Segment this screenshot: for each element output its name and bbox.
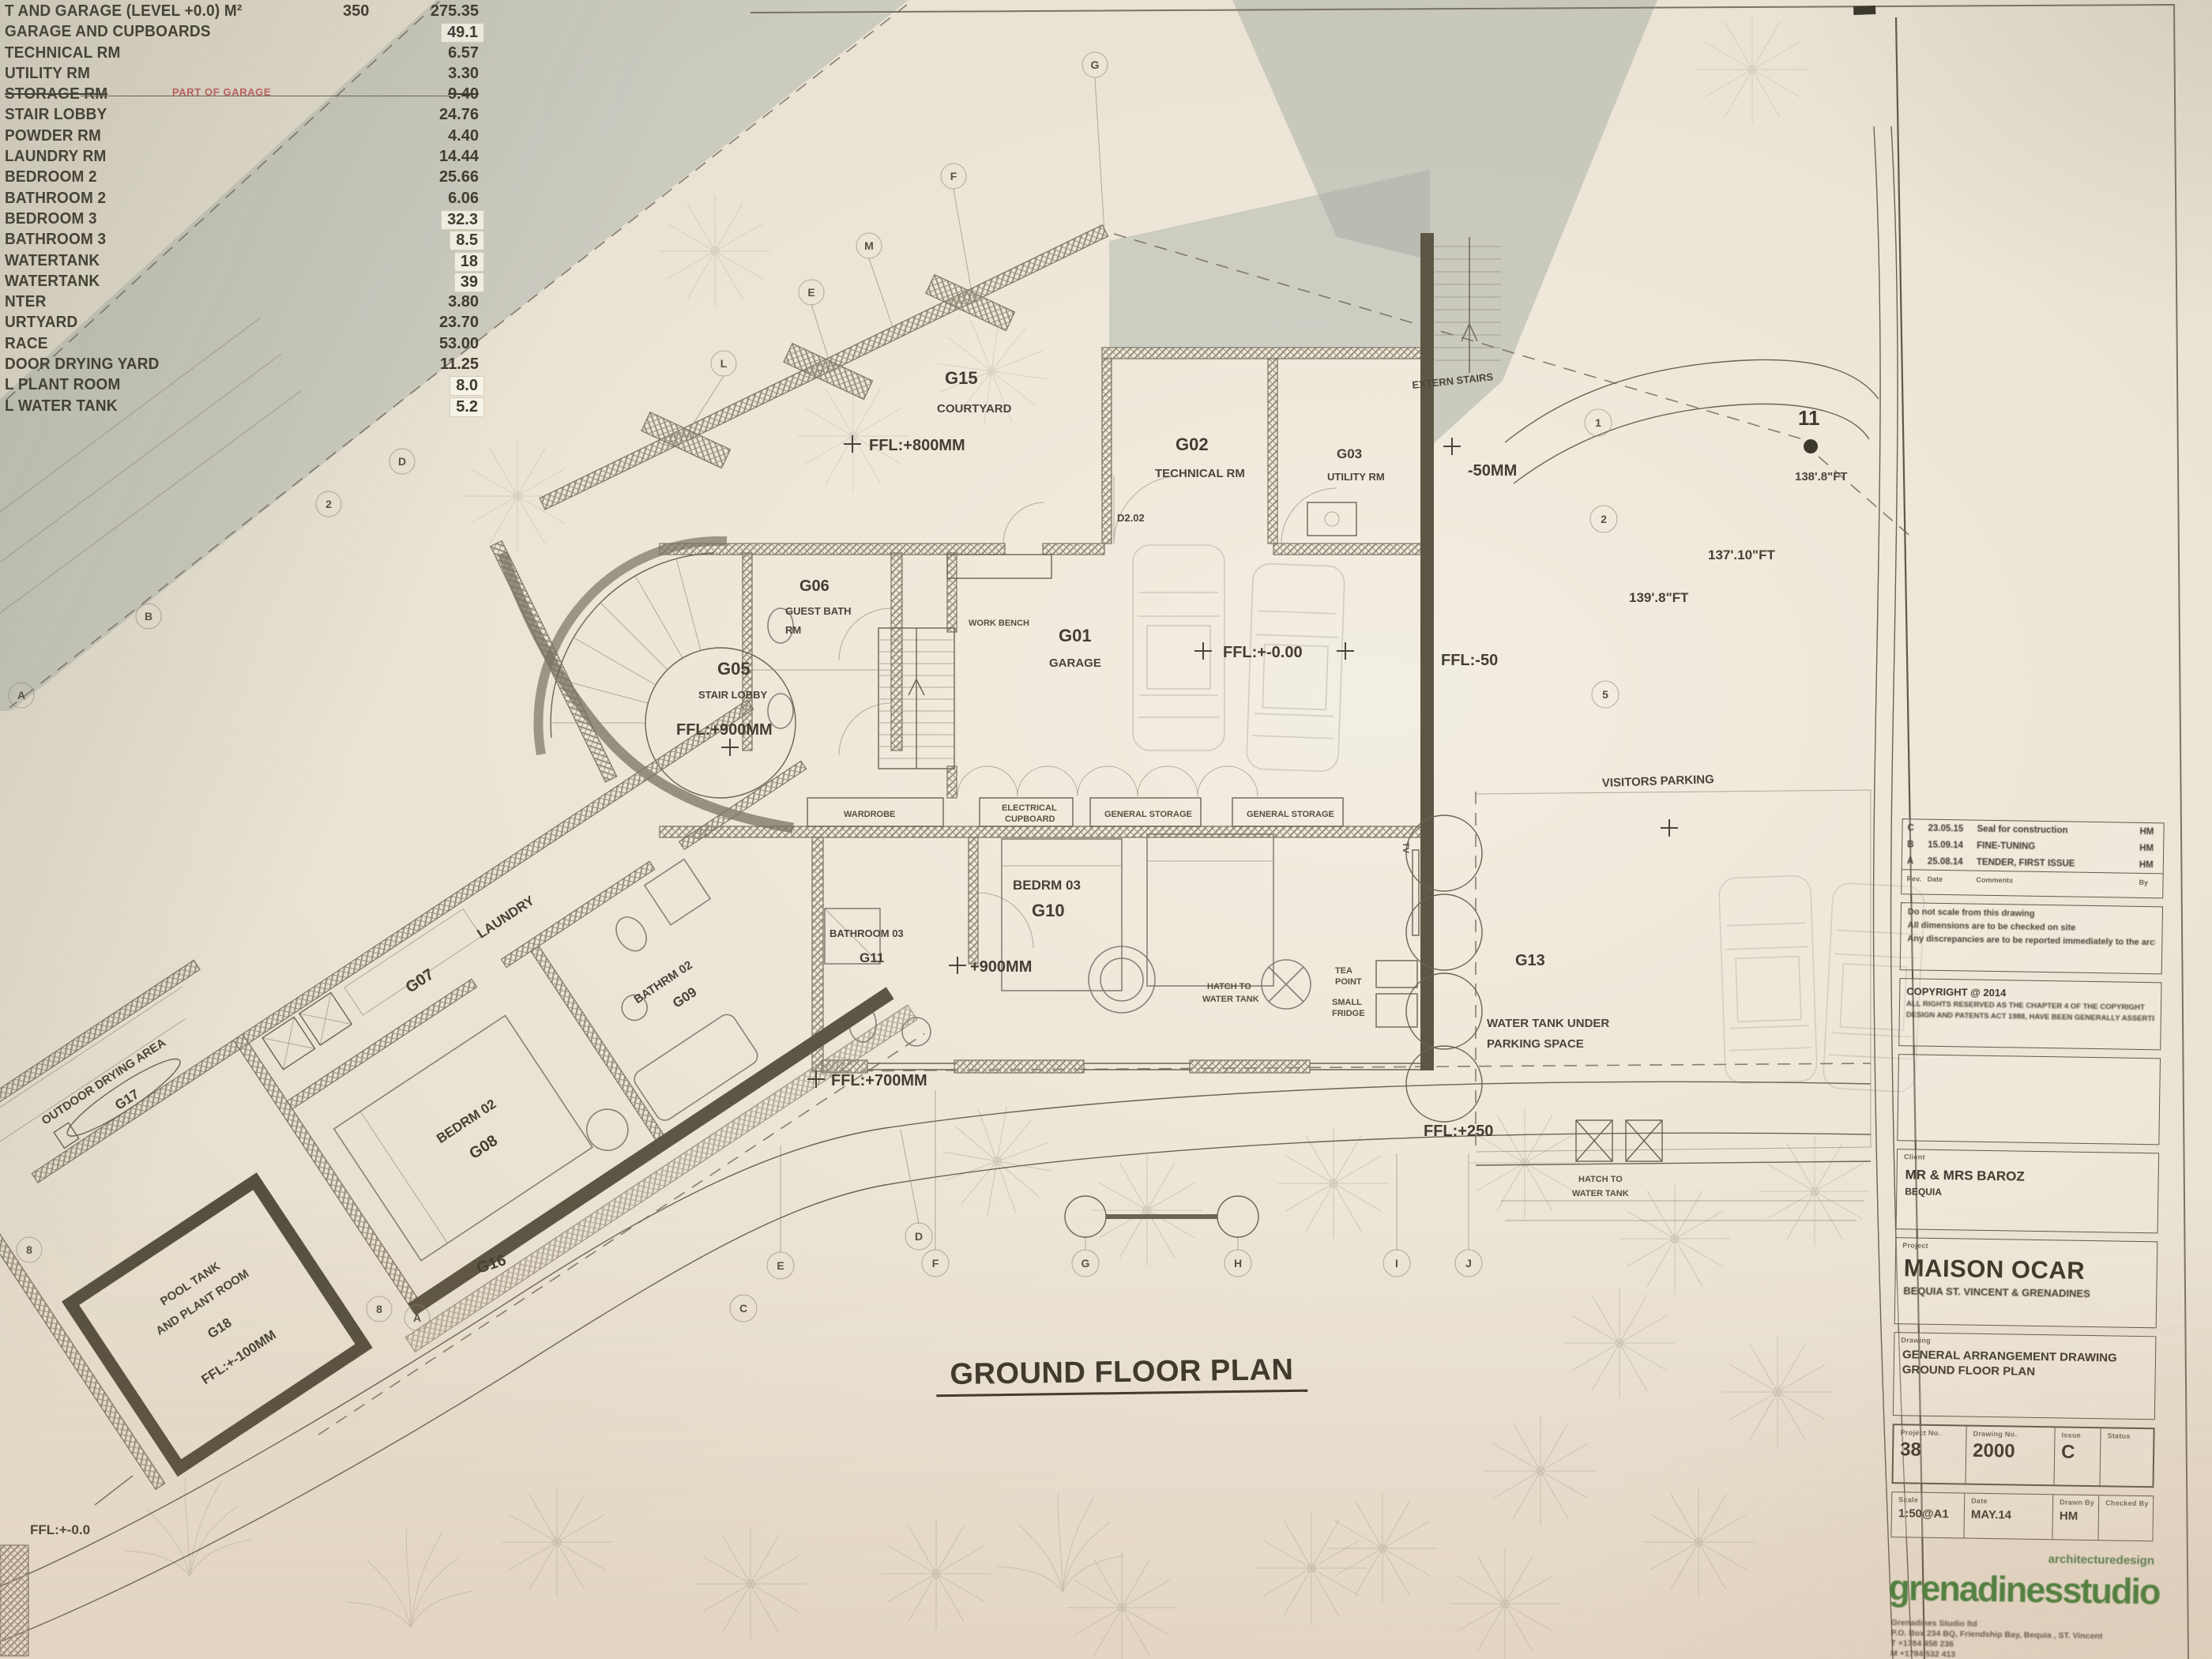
svg-text:F: F (932, 1257, 939, 1270)
revision-table: C 23.05.15 Seal for construction HM B 15… (1901, 818, 2164, 898)
rev-comment: TENDER, FIRST ISSUE (1977, 857, 2139, 869)
schedule-row: L WATER TANK5.2 (3, 397, 483, 417)
fridge-label2: FRIDGE (1332, 1009, 1365, 1018)
door-arc (1114, 476, 1182, 544)
rev-by: HM (2139, 826, 2163, 836)
ffl-800: FFL:+800MM (869, 437, 965, 454)
scale-box: Scale1:50@A1 DateMAY.14 Drawn ByHM Check… (1890, 1492, 2154, 1541)
schedule-name: BATHROOM 2 (5, 190, 106, 208)
work-bench (947, 555, 1051, 578)
copyright-line: DESIGN AND PATENTS ACT 1988, HAVE BEEN G… (1906, 1010, 2154, 1023)
schedule-name: RACE (5, 335, 48, 353)
svg-text:D: D (915, 1230, 923, 1243)
room-area-schedule: T AND GARAGE (LEVEL +0.0) M²350275.35 GA… (3, 2, 483, 417)
ffl-250: FFL:+250 (1424, 1123, 1493, 1140)
fridge-label1: SMALL (1332, 998, 1362, 1007)
svg-text:2: 2 (1601, 513, 1607, 525)
work-bench-label: WORK BENCH (969, 619, 1029, 628)
svg-text:J: J (1465, 1257, 1472, 1270)
tv-label: TV (1401, 842, 1410, 854)
drawn-by-value: HM (2060, 1509, 2098, 1523)
hatch-label-1a: HATCH TO (1207, 982, 1251, 991)
schedule-value: 8.5 (450, 231, 484, 250)
schedule-name: LAUNDRY RM (5, 148, 107, 166)
rev-letter: B (1902, 840, 1928, 850)
studio-logo: grenadinesstudio (1888, 1567, 2160, 1612)
room-code-g09: G09 (670, 984, 699, 1011)
svg-text:E: E (777, 1259, 784, 1272)
project-label: Project (1902, 1241, 2157, 1253)
schedule-value: 32.3 (441, 210, 484, 230)
schedule-name: BEDROOM 2 (5, 168, 97, 186)
room-code-g18: G18 (205, 1315, 234, 1342)
road-edge (1505, 359, 1879, 442)
meta-head: Drawn By (2060, 1498, 2098, 1507)
client-label: Client (1904, 1153, 2158, 1164)
room-code-g15: G15 (945, 368, 978, 388)
wall (947, 766, 957, 798)
tv-unit (1413, 850, 1419, 935)
schedule-name: T AND GARAGE (LEVEL +0.0) M² (5, 2, 242, 21)
svg-text:C: C (739, 1302, 747, 1315)
svg-text:M: M (864, 239, 874, 252)
schedule-name: L WATER TANK (5, 397, 118, 416)
schedule-name: STAIR LOBBY (5, 106, 107, 124)
schedule-name: STORAGE RM (5, 85, 107, 103)
datum-point (1804, 439, 1818, 453)
schedule-value: 4.40 (448, 127, 479, 145)
ffl-900: FFL:+900MM (676, 721, 773, 739)
schedule-name: DOOR DRYING YARD (5, 355, 160, 374)
hatch-label-1b: WATER TANK (1202, 995, 1259, 1004)
meta-head: Project No. (1900, 1428, 1966, 1437)
meta-head: Status (2107, 1431, 2153, 1440)
corner-mark (1853, 6, 1875, 15)
dim-11: 11 (1798, 406, 1820, 430)
client-name: MR & MRS BAROZ (1905, 1167, 2157, 1187)
wardrobe-label: WARDROBE (844, 810, 895, 819)
schedule-count: 350 (343, 2, 369, 21)
project-number: 38 (1900, 1439, 1966, 1461)
schedule-row: WATERTANK39 (3, 272, 483, 292)
svg-text:A: A (413, 1311, 421, 1324)
rev-letter: A (1902, 856, 1928, 867)
svg-text:G: G (1091, 58, 1100, 71)
schedule-name: TECHNICAL RM (5, 44, 121, 62)
rev-by: HM (2139, 843, 2163, 852)
schedule-name: NTER (5, 293, 46, 311)
schedule-name: WATERTANK (5, 252, 100, 270)
room-name-stairlobby: STAIR LOBBY (698, 689, 767, 701)
schedule-row: LAUNDRY RM14.44 (3, 147, 483, 167)
schedule-value: 25.66 (439, 168, 479, 186)
schedule-row: GARAGE AND CUPBOARDS49.1 (3, 22, 483, 43)
studio-address: Grenadines Studio ltd P.O. Box 234 BQ, F… (1890, 1618, 2103, 1659)
schedule-row: WATERTANK18 (3, 251, 483, 272)
schedule-row: UTILITY RM3.30 (3, 64, 483, 85)
room-code-g08: G08 (466, 1132, 501, 1163)
drawing-number: 2000 (1973, 1440, 2054, 1464)
cupboard-door-arcs (957, 766, 1258, 796)
schedule-row: L PLANT ROOM8.0 (3, 375, 483, 396)
level-markers (721, 435, 1678, 1088)
rev-date: 25.08.14 (1928, 856, 1977, 867)
schedule-value: 14.44 (439, 148, 479, 166)
room-name-guestbath1: GUEST BATH (785, 605, 852, 617)
room-code-g01: G01 (1059, 626, 1092, 645)
red-annotation: PART OF GARAGE (172, 86, 271, 98)
svg-text:2: 2 (325, 498, 332, 510)
parking-outline (1476, 790, 1871, 1152)
schedule-row-storage: STORAGE RM PART OF GARAGE 9.40 (3, 85, 483, 105)
schedule-value: 24.76 (439, 106, 479, 124)
rev-head: Rev. (1902, 875, 1927, 883)
schedule-row: BEDROOM 332.3 (3, 209, 483, 230)
schedule-name: L PLANT ROOM (5, 376, 121, 394)
rev-head: By (2139, 878, 2162, 886)
schedule-name: BATHROOM 3 (5, 231, 106, 249)
room-name-bathroom03: BATHROOM 03 (829, 927, 904, 939)
schedule-value: 18 (454, 252, 484, 272)
room-code-g03: G03 (1337, 446, 1362, 461)
title-block: C 23.05.15 Seal for construction HM B 15… (1873, 0, 2199, 1659)
hatch-label-2a: HATCH TO (1578, 1175, 1623, 1184)
studio-tagline: architecturedesign (2048, 1552, 2154, 1567)
photographed-floor-plan-sheet: G07 LAUNDRY BEDRM 02 G08 BATHRM 02 G09 O… (0, 0, 2212, 1659)
dim-139: 139'.8"FT (1629, 590, 1689, 605)
notes-box: Do not scale from this drawing All dimen… (1900, 902, 2163, 974)
schedule-value: 39 (454, 273, 484, 292)
scale-value: 1:50@A1 (1898, 1507, 1964, 1521)
copyright-line: ALL RIGHTS RESERVED AS THE CHAPTER 4 OF … (1906, 999, 2154, 1012)
visitors-parking-label: VISITORS PARKING (1602, 773, 1714, 790)
meta-head: Scale (1898, 1495, 1964, 1504)
wall (1190, 1060, 1310, 1073)
svg-text:B: B (145, 610, 152, 623)
ffl-minus50: FFL:-50 (1441, 652, 1498, 669)
rev-letter: C (1902, 823, 1928, 833)
svg-text:G: G (1082, 1257, 1090, 1270)
schedule-value: 8.0 (450, 376, 484, 396)
g13-label2: PARKING SPACE (1487, 1037, 1584, 1051)
number-box: Project No.38 Drawing No.2000 IssueC Sta… (1891, 1424, 2154, 1488)
note-line: All dimensions are to be checked on site (1908, 920, 2156, 934)
project-name: MAISON OCAR (1904, 1254, 2157, 1286)
ffl-00: FFL:+-0.0 (30, 1522, 90, 1537)
room-name-technical: TECHNICAL RM (1155, 467, 1245, 480)
schedule-row: STAIR LOBBY24.76 (3, 105, 483, 126)
general-storage-label1: GENERAL STORAGE (1104, 810, 1192, 819)
svg-text:A: A (17, 689, 25, 702)
section-marker (1065, 1196, 1106, 1237)
checked-by-value (2105, 1510, 2153, 1510)
section-marker (1217, 1196, 1258, 1237)
tea-point-label1: TEA (1335, 966, 1352, 976)
svg-text:H: H (1234, 1257, 1242, 1270)
room-code-g07: G07 (403, 965, 438, 996)
ffl-700: FFL:+700MM (831, 1072, 927, 1089)
main-east-wall (1420, 233, 1434, 1070)
schedule-row: BATHROOM 26.06 (3, 189, 483, 209)
wall (1102, 359, 1112, 544)
schedule-value: 3.30 (448, 65, 479, 83)
svg-text:1: 1 (1595, 416, 1601, 429)
schedule-row: TECHNICAL RM6.57 (3, 43, 483, 64)
schedule-row: T AND GARAGE (LEVEL +0.0) M²350275.35 (3, 2, 483, 22)
schedule-value: 23.70 (439, 314, 479, 332)
dim-137: 137'.10"FT (1708, 547, 1775, 562)
general-storage-label2: GENERAL STORAGE (1247, 810, 1334, 819)
svg-text:F: F (950, 170, 957, 182)
rev-by: HM (2139, 860, 2163, 869)
door-arc (978, 893, 1033, 948)
wall (954, 1060, 1084, 1073)
hatch-label-2b: WATER TANK (1572, 1189, 1629, 1198)
drawing-line2: GROUND FLOOR PLAN (1902, 1363, 2155, 1380)
rev-date: 23.05.15 (1928, 823, 1977, 833)
svg-text:D: D (398, 455, 406, 468)
svg-text:E: E (807, 286, 814, 299)
g13-label1: WATER TANK UNDER (1487, 1017, 1609, 1030)
ffl-000: FFL:+-0.00 (1223, 644, 1303, 661)
schedule-value: 53.00 (439, 335, 479, 353)
project-box: Project MAISON OCAR BEQUIA ST. VINCENT &… (1894, 1237, 2158, 1328)
date-value: MAY.14 (1971, 1508, 2052, 1523)
room-name-courtyard: COURTYARD (937, 402, 1012, 416)
copyright-title: COPYRIGHT @ 2014 (1906, 985, 2154, 1001)
drawing-line1: GENERAL ARRANGEMENT DRAWING (1902, 1348, 2155, 1365)
project-location: BEQUIA ST. VINCENT & GRENADINES (1903, 1285, 2156, 1300)
room-name-utility: UTILITY RM (1327, 471, 1385, 483)
wall (1043, 544, 1104, 555)
copyright-box: COPYRIGHT @ 2014 ALL RIGHTS RESERVED AS … (1898, 978, 2161, 1050)
wall (1273, 544, 1430, 555)
meta-head: Issue (2061, 1431, 2100, 1439)
drawing-title: GROUND FLOOR PLAN (936, 1353, 1308, 1398)
schedule-name: BEDROOM 3 (5, 210, 97, 228)
door-tag-d202: D2.02 (1117, 512, 1145, 524)
schedule-value: 275.35 (431, 2, 479, 21)
schedule-name: GARAGE AND CUPBOARDS (5, 23, 211, 41)
schedule-name: URTYARD (5, 314, 77, 332)
minus-50mm: -50MM (1468, 462, 1517, 480)
svg-text:I: I (1395, 1257, 1398, 1270)
schedule-value: 3.80 (448, 293, 479, 311)
room-code-g11: G11 (860, 950, 884, 965)
note-line: Any discrepancies are to be reported imm… (1907, 934, 2155, 947)
schedule-row: URTYARD23.70 (3, 313, 483, 333)
client-location: BEQUIA (1905, 1186, 2157, 1201)
room-name-guestbath2: RM (785, 624, 801, 636)
room-name-bedrm03: BEDRM 03 (1013, 878, 1081, 893)
schedule-row: BEDROOM 225.66 (3, 167, 483, 188)
dim-138: 138'.8"FT (1795, 470, 1848, 483)
schedule-name: UTILITY RM (5, 65, 90, 83)
meta-head: Checked By (2105, 1499, 2153, 1507)
utility-fixture (1307, 502, 1356, 536)
schedule-row: RACE53.00 (3, 334, 483, 355)
schedule-row: NTER3.80 (3, 292, 483, 313)
rev-comment: Seal for construction (1977, 824, 2139, 836)
room-code-g05: G05 (717, 659, 750, 679)
rev-date: 15.09.14 (1928, 840, 1977, 850)
schedule-name: WATERTANK (5, 273, 100, 291)
schedule-value: 11.25 (440, 355, 479, 374)
svg-text:L: L (720, 357, 728, 370)
schedule-row: POWDER RM4.40 (3, 126, 483, 147)
wall (1268, 359, 1277, 544)
electrical-label1: ELECTRICAL (1002, 803, 1057, 813)
room-code-g02: G02 (1176, 434, 1209, 454)
status-value (2107, 1442, 2153, 1443)
blank-box (1897, 1054, 2161, 1145)
door-arc (1003, 502, 1044, 544)
rev-comment: FINE-TUNING (1977, 841, 2139, 852)
schedule-row: DOOR DRYING YARD11.25 (3, 355, 483, 375)
meta-head: Date (1971, 1497, 2052, 1507)
schedule-value: 5.2 (450, 397, 484, 417)
wall (1102, 348, 1431, 359)
schedule-name: POWDER RM (5, 127, 101, 145)
svg-text:8: 8 (376, 1303, 382, 1315)
room-code-g13: G13 (1515, 952, 1545, 969)
schedule-value: 49.1 (441, 23, 484, 43)
room-code-g10: G10 (1032, 901, 1065, 920)
schedule-value: 6.57 (448, 44, 479, 62)
wall (947, 553, 957, 632)
meta-head: Drawing No. (1973, 1430, 2054, 1439)
rev-head: Date (1927, 875, 1976, 884)
client-box: Client MR & MRS BAROZ BEQUIA (1896, 1149, 2160, 1233)
wall (969, 837, 978, 964)
schedule-row: BATHROOM 38.5 (3, 230, 483, 250)
room-name-laundry: LAUNDRY (474, 893, 537, 942)
electrical-label2: CUPBOARD (1005, 814, 1055, 824)
schedule-value: 9.40 (448, 85, 479, 103)
rev-head: Comments (1976, 876, 2139, 886)
drawing-label: Drawing (1901, 1336, 2155, 1348)
issue-letter: C (2061, 1441, 2100, 1464)
note-line: Do not scale from this drawing (1908, 907, 2156, 920)
svg-text:8: 8 (26, 1243, 32, 1256)
drawing-box: Drawing GENERAL ARRANGEMENT DRAWING GROU… (1893, 1332, 2157, 1420)
schedule-value: 6.06 (448, 190, 479, 208)
room-code-g06: G06 (799, 577, 829, 595)
plus-900mm: +900MM (970, 958, 1032, 976)
tea-point-label2: POINT (1335, 977, 1362, 987)
svg-text:5: 5 (1602, 688, 1608, 701)
room-name-garage: GARAGE (1049, 656, 1101, 670)
